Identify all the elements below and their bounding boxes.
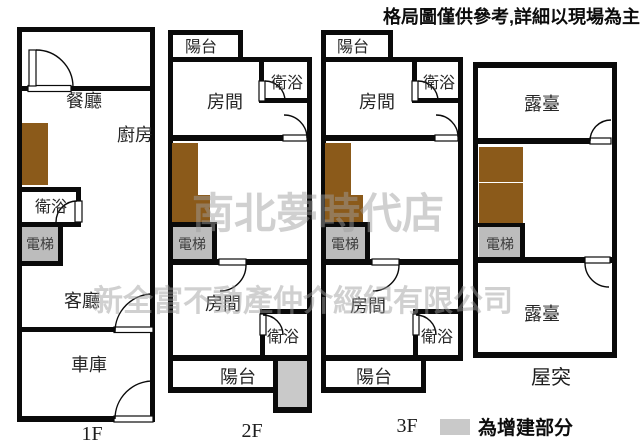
wall [399, 259, 463, 265]
floor-plan-page: 餐廳 廚房 衛浴 電梯 客廳 車庫 1F [0, 0, 640, 447]
wall [168, 30, 243, 35]
wall [58, 227, 63, 266]
cabinet-counter [172, 143, 198, 195]
roof-floor-label: 屋突 [531, 366, 571, 389]
cabinet-counter [325, 143, 351, 195]
wall [273, 361, 278, 413]
wall [321, 57, 463, 62]
floorplan-1f: 餐廳 廚房 衛浴 電梯 客廳 車庫 1F [17, 27, 155, 445]
door-swing [115, 381, 153, 419]
f1-kitchen-label: 廚房 [117, 124, 153, 145]
door-leaf [114, 416, 153, 422]
f2-bath-bottom-label: 衛浴 [267, 328, 299, 346]
f2-balcony-bottom-label: 陽台 [220, 367, 256, 387]
roof-elevator-label: 電梯 [486, 237, 514, 253]
wall [168, 259, 219, 265]
wall [22, 187, 81, 192]
cabinet-counter [479, 147, 523, 182]
f2-bath-top-label: 衛浴 [271, 74, 303, 92]
door-leaf [114, 327, 153, 333]
f3-balcony-bottom-label: 陽台 [356, 367, 392, 387]
f1-garage-label: 車庫 [71, 355, 107, 375]
f1-elevator-label: 電梯 [26, 237, 54, 253]
floor-plan-canvas: 餐廳 廚房 衛浴 電梯 客廳 車庫 1F [0, 0, 640, 447]
door-leaf [590, 138, 611, 144]
wall [150, 27, 155, 422]
wall [321, 387, 426, 393]
watermark-company-name: 新全富不動產仲介經紀有限公司 [93, 284, 513, 318]
f1-dining-label: 餐廳 [66, 91, 102, 111]
door-swing [436, 115, 458, 137]
wall [17, 27, 22, 422]
wall [473, 223, 525, 227]
wall [168, 387, 278, 393]
disclaimer-text: 格局圖僅供參考,詳細以現場為主 [383, 6, 640, 27]
wall [168, 135, 283, 141]
roof-terrace-top-label: 露臺 [524, 94, 560, 114]
wall [321, 355, 413, 361]
door-leaf [435, 135, 458, 141]
door-leaf [219, 259, 246, 265]
f3-bath-top-label: 衛浴 [423, 74, 455, 92]
wall [22, 327, 114, 332]
wall [421, 361, 426, 393]
door-leaf [283, 135, 307, 141]
wall [22, 222, 81, 227]
f1-floor-label: 1F [81, 423, 102, 445]
wall [321, 135, 435, 141]
f3-bath-bottom-label: 衛浴 [421, 328, 453, 346]
door-swing [585, 263, 609, 287]
door-leaf [412, 81, 418, 101]
added-structure-area [278, 361, 307, 407]
wall [273, 407, 312, 413]
f2-room-top-label: 房間 [207, 92, 243, 112]
legend-added-swatch [440, 419, 470, 435]
f1-bath-label: 衛浴 [35, 198, 67, 216]
wall [17, 261, 63, 266]
f3-elevator-label: 電梯 [331, 237, 359, 253]
wall [473, 138, 590, 144]
door-leaf [259, 81, 265, 101]
door-swing [36, 50, 73, 87]
door-leaf [75, 201, 82, 222]
wall [612, 62, 617, 358]
watermark-store-name: 南北夢時代店 [192, 190, 444, 237]
f3-floor-label: 3F [396, 415, 417, 437]
legend-added: 為增建部分 [440, 416, 573, 439]
wall [321, 259, 372, 265]
legend-added-label: 為增建部分 [478, 416, 573, 439]
cabinet-counter [22, 123, 48, 185]
wall [246, 259, 312, 265]
wall [168, 355, 260, 361]
wall [168, 57, 312, 62]
wall [473, 257, 585, 263]
wall [260, 355, 312, 361]
wall [610, 257, 617, 263]
f3-balcony-top-label: 陽台 [337, 38, 369, 56]
wall [321, 30, 393, 35]
door-leaf [585, 257, 610, 263]
cabinet-counter [479, 183, 523, 223]
f2-floor-label: 2F [241, 420, 262, 442]
door-leaf [372, 259, 399, 265]
f2-balcony-top-label: 陽台 [185, 38, 217, 56]
floorplan-roof: 露臺 電梯 露臺 屋突 [473, 62, 617, 389]
wall [473, 352, 617, 358]
wall [473, 62, 617, 68]
wall [17, 27, 155, 32]
f2-elevator-label: 電梯 [178, 237, 206, 253]
f3-room-top-label: 房間 [359, 92, 395, 112]
wall [413, 355, 463, 361]
roof-terrace-bottom-label: 露臺 [524, 304, 560, 324]
door-leaf [29, 50, 36, 86]
